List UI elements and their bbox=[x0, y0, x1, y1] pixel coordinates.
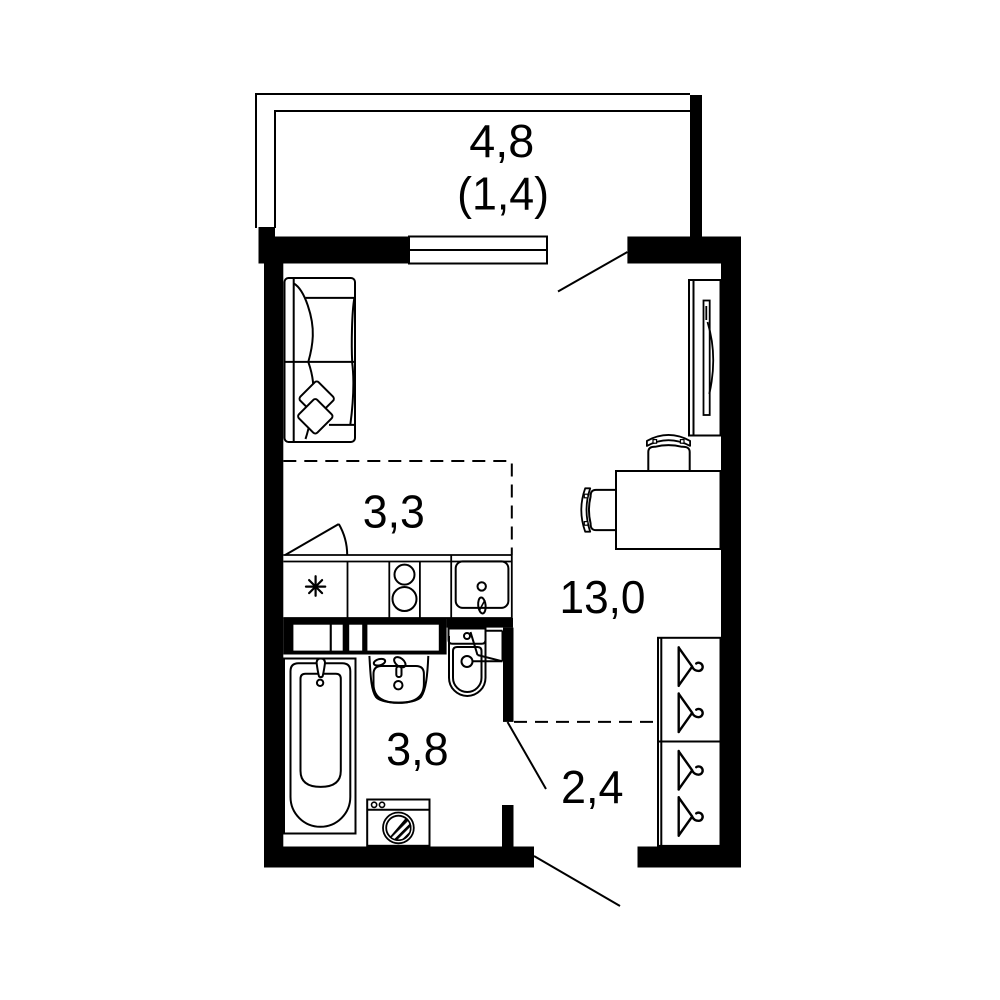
svg-text:3,8: 3,8 bbox=[386, 723, 449, 775]
svg-text:(1,4): (1,4) bbox=[457, 168, 549, 220]
svg-text:2,4: 2,4 bbox=[561, 761, 624, 813]
svg-text:3,3: 3,3 bbox=[363, 486, 425, 538]
svg-text:13,0: 13,0 bbox=[560, 571, 646, 623]
svg-text:4,8: 4,8 bbox=[469, 115, 534, 167]
